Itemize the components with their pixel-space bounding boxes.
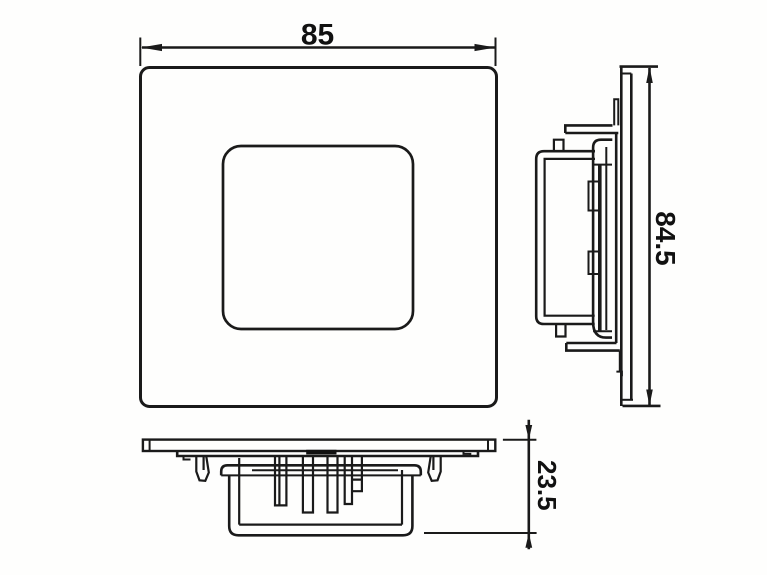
svg-text:84.5: 84.5 [650, 211, 681, 266]
svg-text:85: 85 [301, 19, 334, 52]
svg-text:23.5: 23.5 [532, 460, 562, 511]
